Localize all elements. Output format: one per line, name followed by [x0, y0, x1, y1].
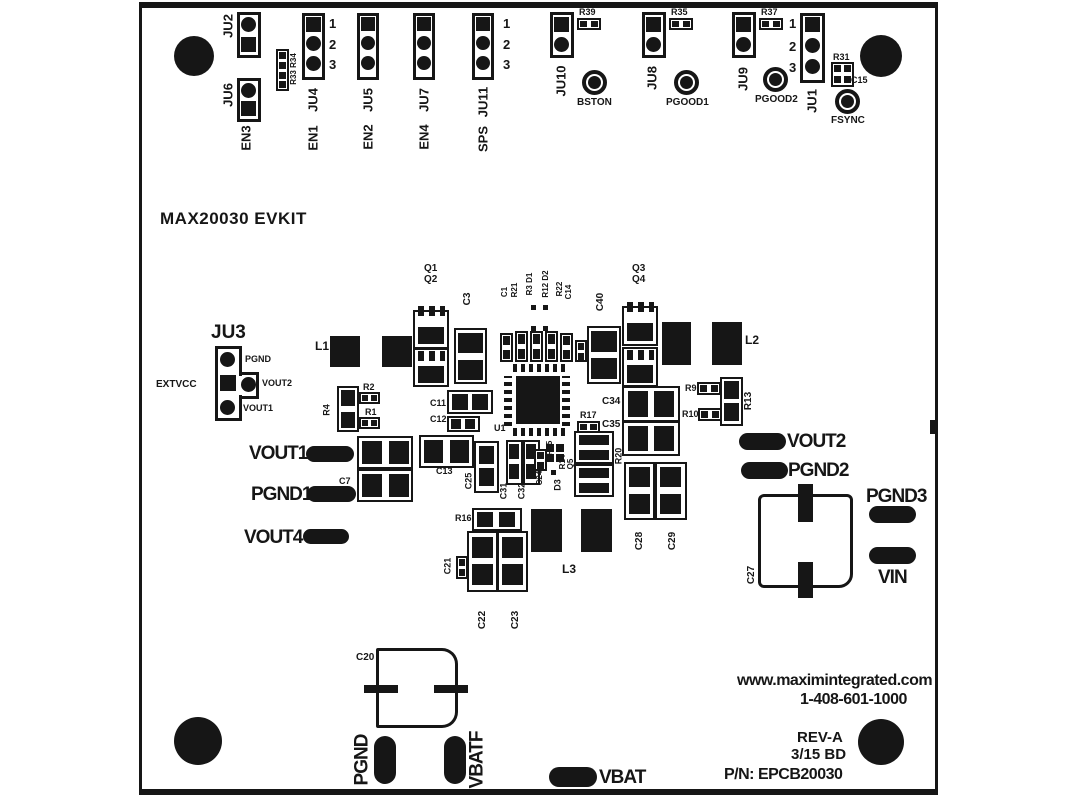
mounting-hole	[174, 717, 222, 765]
pin-number: 2	[329, 38, 336, 51]
label-ju2: JU2	[222, 14, 235, 38]
pad	[805, 17, 820, 32]
label-vbat: VBAT	[599, 768, 645, 787]
dot	[531, 305, 536, 310]
pad	[654, 426, 674, 451]
pad	[518, 349, 525, 359]
label-c27: C27	[747, 566, 757, 584]
pad-vout2	[739, 433, 786, 450]
label-c23: C23	[511, 611, 521, 629]
label-r9: R9	[685, 384, 697, 393]
label-pgood1: PGOOD1	[666, 98, 709, 108]
label-ju6: JU6	[222, 83, 235, 107]
pad	[371, 395, 377, 401]
pad	[241, 37, 256, 52]
pad	[362, 474, 382, 497]
testpoint-pgood2	[763, 67, 788, 92]
label-bston: BSTON	[577, 98, 612, 108]
pad	[472, 394, 488, 410]
pad	[578, 353, 584, 360]
pad	[533, 349, 540, 359]
label-c20: C20	[356, 653, 374, 663]
pad	[554, 17, 569, 32]
pad	[591, 331, 617, 352]
label-c25: C25	[465, 473, 474, 490]
pin-number: 3	[789, 61, 796, 74]
label-fsync: FSYNC	[831, 116, 865, 126]
pad	[450, 440, 469, 463]
pad	[546, 454, 554, 462]
cap-c27-pad	[798, 484, 813, 522]
body	[418, 327, 444, 344]
label-c29: C29	[668, 532, 678, 550]
label-q1: Q1	[424, 264, 437, 274]
pin-number: 2	[789, 40, 796, 53]
pad	[548, 334, 555, 344]
cap-c27-pad	[798, 562, 813, 598]
pad	[646, 17, 661, 32]
pad-vin	[869, 547, 916, 564]
label-c14: C14	[565, 285, 573, 300]
pad	[306, 17, 321, 32]
label-l3: L3	[562, 563, 576, 575]
pad	[579, 483, 609, 493]
pin-number: 1	[503, 17, 510, 30]
label-r22: R22	[556, 282, 564, 297]
mounting-hole	[858, 719, 904, 765]
pad	[762, 21, 769, 27]
pad	[389, 441, 409, 464]
pad	[417, 17, 431, 31]
pad	[672, 21, 679, 27]
pad	[724, 403, 739, 421]
pad	[362, 420, 368, 426]
pad	[465, 419, 475, 429]
label-u1: U1	[494, 424, 506, 433]
pad	[424, 440, 443, 463]
dot	[543, 305, 548, 310]
edge-pad	[930, 420, 938, 434]
pad	[502, 537, 523, 558]
pad	[341, 412, 355, 428]
label-r33-r34: R33 R34	[290, 53, 298, 85]
label-c31: C31	[500, 483, 509, 500]
label-c40: C40	[596, 293, 606, 311]
pad	[736, 17, 751, 32]
label-extvcc: EXTVCC	[156, 380, 197, 390]
pad	[417, 56, 431, 70]
inductor-l3-pad	[581, 509, 612, 552]
pad	[700, 385, 707, 392]
pad	[361, 36, 375, 50]
label-r31: R31	[833, 53, 850, 62]
pad	[724, 381, 739, 399]
pad	[306, 56, 321, 71]
pad	[844, 76, 851, 83]
label-ju5: JU5	[362, 88, 375, 112]
pad	[220, 352, 235, 367]
cap-c20-pad	[364, 685, 398, 693]
label-c21: C21	[444, 558, 453, 575]
label-ju9: JU9	[737, 67, 750, 91]
pad	[452, 394, 468, 410]
label-c22: C22	[478, 611, 488, 629]
chip-u1-pins	[513, 364, 567, 372]
pad-pgnd3	[869, 506, 916, 523]
pad-vout1	[306, 446, 354, 462]
label-pgood2: PGOOD2	[755, 95, 798, 105]
label-en3: EN3	[240, 125, 253, 150]
leads	[627, 350, 654, 360]
pad	[472, 537, 493, 558]
label-pgnd3: PGND3	[866, 487, 926, 506]
pad	[458, 333, 483, 353]
chip-u1-pins	[504, 376, 512, 426]
label-ju8: JU8	[646, 66, 659, 90]
pad	[554, 37, 569, 52]
label-q2: Q2	[424, 275, 437, 285]
pin-number: 1	[789, 17, 796, 30]
label-r35: R35	[671, 8, 688, 17]
pad	[701, 411, 708, 418]
pad	[579, 468, 609, 478]
inductor-l2-pad	[712, 322, 742, 365]
pad	[711, 385, 718, 392]
label-r1: R1	[365, 408, 377, 417]
label-en2: EN2	[362, 124, 375, 149]
label-ju3-pgnd: PGND	[245, 355, 271, 364]
label-c7: C7	[339, 477, 351, 486]
pad	[509, 464, 519, 479]
label-c32: C32	[518, 483, 527, 500]
label-vout4: VOUT4	[244, 528, 302, 547]
mounting-hole	[860, 35, 902, 77]
pad	[241, 83, 256, 98]
footer-phone: 1-408-601-1000	[800, 692, 907, 708]
pad	[479, 446, 494, 464]
cap-c20-pad	[434, 685, 468, 693]
pin-number: 3	[329, 58, 336, 71]
label-c12: C12	[430, 415, 447, 424]
testpoint-pgood1	[674, 70, 699, 95]
pad	[591, 358, 617, 379]
pad	[518, 334, 525, 344]
pad	[241, 377, 256, 392]
pad	[279, 81, 286, 88]
label-r16: R16	[455, 514, 472, 523]
label-vout1: VOUT1	[249, 444, 307, 463]
pad	[509, 444, 519, 459]
label-r10: R10	[682, 410, 699, 419]
inductor-l3-pad	[531, 509, 562, 552]
pad	[660, 494, 681, 514]
pad	[579, 435, 609, 445]
label-l1: L1	[315, 340, 329, 352]
pad	[805, 38, 820, 53]
pad	[537, 462, 544, 469]
label-q3: Q3	[632, 264, 645, 274]
pad	[361, 56, 375, 70]
chip-u1-pins	[562, 376, 570, 426]
pad	[654, 391, 674, 417]
pad	[805, 59, 820, 74]
label-ju3-vout1: VOUT1	[243, 404, 273, 413]
inductor-l1-pad	[382, 336, 412, 367]
pad-pgnd1	[307, 486, 356, 502]
board-title: MAX20030 EVKIT	[160, 210, 307, 227]
pad	[241, 101, 256, 116]
label-c28: C28	[635, 532, 645, 550]
pad	[279, 72, 286, 79]
label-pgnd2: PGND2	[788, 461, 848, 480]
label-r17: R17	[580, 411, 597, 420]
leads	[418, 306, 445, 316]
label-en4: EN4	[418, 124, 431, 149]
label-c35: C35	[602, 420, 620, 430]
label-r21: R21	[511, 283, 519, 298]
pad	[590, 424, 597, 430]
inductor-l2-pad	[662, 322, 691, 365]
pin-number: 2	[503, 38, 510, 51]
footer-rev: REV-A	[797, 730, 843, 745]
pad	[362, 395, 368, 401]
pad	[499, 512, 515, 527]
label-r13: R13	[744, 392, 754, 410]
pad	[503, 336, 510, 345]
pad	[563, 350, 570, 359]
pad	[341, 390, 355, 406]
label-sps: SPS	[477, 126, 490, 152]
footer-part-number: P/N: EPCB20030	[724, 767, 842, 783]
pad	[628, 426, 648, 451]
pad	[371, 420, 377, 426]
leads	[418, 351, 445, 361]
pad	[279, 52, 286, 59]
label-c3: C3	[463, 293, 473, 306]
label-r37: R37	[761, 8, 778, 17]
label-pgnd: PGND	[353, 735, 372, 786]
label-vout2: VOUT2	[787, 432, 845, 451]
body	[627, 323, 653, 341]
label-ju11: JU11	[477, 87, 490, 117]
label-c11: C11	[430, 399, 446, 408]
label-r12-d2: R12 D2	[542, 270, 550, 297]
label-l2: L2	[745, 334, 759, 346]
pad	[220, 400, 235, 415]
label-c13: C13	[436, 467, 453, 476]
pad	[736, 37, 751, 52]
pad	[362, 441, 382, 464]
body	[418, 366, 444, 383]
label-r39: R39	[579, 8, 596, 17]
pad	[503, 350, 510, 359]
leads	[627, 302, 654, 312]
label-ju3-vout2: VOUT2	[262, 379, 292, 388]
footer-date: 3/15 BD	[791, 747, 846, 762]
pad	[459, 559, 465, 566]
pad	[580, 21, 587, 27]
label-r4: R4	[323, 404, 332, 416]
pad	[548, 349, 555, 359]
pad	[502, 564, 523, 585]
pad	[834, 76, 841, 83]
pad	[556, 444, 564, 452]
label-r2: R2	[363, 383, 375, 392]
pad	[476, 36, 490, 50]
label-vin: VIN	[878, 568, 907, 587]
label-ju7: JU7	[418, 88, 431, 112]
label-en1: EN1	[307, 125, 320, 150]
label-r20: R20	[615, 448, 624, 465]
chip-u1-body	[516, 376, 560, 424]
testpoint-fsync	[835, 89, 860, 114]
pin-number: 1	[329, 17, 336, 30]
pad	[472, 564, 493, 585]
testpoint-bston	[582, 70, 607, 95]
pad	[417, 36, 431, 50]
label-ju4: JU4	[307, 88, 320, 112]
pad	[629, 467, 650, 487]
pad	[578, 343, 584, 350]
inductor-l1-pad	[330, 336, 360, 367]
pad	[459, 569, 465, 576]
label-ju1: JU1	[806, 89, 819, 113]
pad	[546, 444, 554, 452]
pad-pgnd2	[741, 462, 788, 479]
pcb-board: JU2 JU6 EN3 R33 R34 1 2 3 JU4 EN1 JU5 EN…	[0, 0, 1080, 800]
label-ju3: JU3	[211, 323, 246, 342]
pin-number: 3	[503, 58, 510, 71]
pad	[591, 21, 598, 27]
label-pgnd1: PGND1	[251, 485, 311, 504]
pad	[660, 467, 681, 487]
pad	[773, 21, 780, 27]
pad	[220, 375, 236, 391]
label-c15: C15	[851, 76, 868, 85]
pad	[361, 17, 375, 31]
pad	[241, 17, 256, 32]
pad	[628, 391, 648, 417]
pad	[844, 65, 851, 72]
pad	[683, 21, 690, 27]
mounting-hole	[174, 36, 214, 76]
pad	[279, 62, 286, 69]
pad	[477, 512, 493, 527]
label-c34: C34	[602, 397, 620, 407]
label-d3: D3	[554, 479, 563, 491]
pad	[712, 411, 719, 418]
pad	[537, 452, 544, 459]
pad	[476, 56, 490, 70]
label-vbatf: VBATF	[468, 732, 487, 789]
label-ju10: JU10	[555, 65, 568, 96]
label-r3-d1: R3 D1	[526, 273, 534, 296]
pad	[834, 65, 841, 72]
pad	[476, 17, 490, 31]
pad	[563, 336, 570, 345]
label-q4: Q4	[632, 275, 645, 285]
pad	[533, 334, 540, 344]
pad	[580, 424, 587, 430]
body	[627, 365, 653, 383]
pad-vbatf	[444, 736, 466, 784]
dot	[551, 470, 556, 475]
pad	[479, 468, 494, 486]
pad-vout4	[303, 529, 349, 544]
pad-pgnd	[374, 736, 396, 784]
pad	[579, 450, 609, 460]
pad	[646, 37, 661, 52]
pad	[458, 360, 483, 380]
label-c1: C1	[501, 287, 509, 297]
footer-website: www.maximintegrated.com	[737, 673, 932, 689]
pad	[629, 494, 650, 514]
pad	[389, 474, 409, 497]
chip-u1-pins	[513, 428, 567, 436]
pad	[451, 419, 461, 429]
label-c24: C24	[536, 471, 544, 486]
pad	[306, 36, 321, 51]
pad-vbat	[549, 767, 597, 787]
